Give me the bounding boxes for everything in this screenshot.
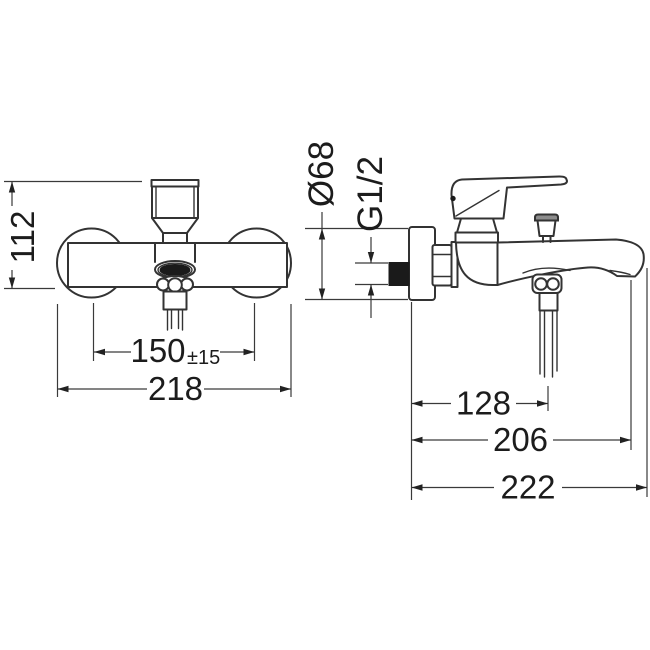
dim-spout-outlet-depth: 206: [412, 280, 632, 458]
thread-connector: [389, 263, 409, 286]
technical-drawing-page: 112 150 ±15 218: [0, 0, 650, 650]
front-view-drawing: [57, 180, 291, 330]
hex-nut: [433, 245, 452, 286]
dim-hole-spacing-label: 150: [130, 332, 185, 369]
dim-shower-outlet-depth: 128: [412, 385, 549, 422]
aerator-opening: [160, 265, 190, 276]
dim-hole-spacing: 150 ±15: [94, 303, 255, 369]
dim-front-width-label: 218: [148, 370, 203, 407]
dim-hole-spacing-tolerance-label: ±15: [187, 347, 220, 369]
dim-shower-outlet-depth-label: 128: [456, 385, 511, 422]
dim-overall-depth-label: 222: [500, 469, 555, 506]
dim-spout-outlet-depth-label: 206: [493, 421, 548, 458]
faucet-body: [456, 243, 498, 286]
front-shower-hose: [164, 292, 187, 331]
side-shower-hose: [540, 293, 558, 377]
lever-handle: [451, 176, 567, 218]
dim-front-height-label: 112: [4, 211, 41, 264]
handle-pivot-dot: [451, 196, 455, 200]
dim-thread-size-label: G1/2: [351, 156, 390, 232]
front-diverter-ring: [157, 276, 193, 292]
drawing-canvas: 112 150 ±15 218: [0, 0, 650, 650]
wall-plate: [409, 227, 435, 300]
front-handle: [152, 180, 199, 243]
dim-escutcheon-diameter-label: Ø68: [302, 141, 341, 207]
diverter-knob: [535, 215, 558, 243]
dim-thread-size: G1/2: [351, 156, 390, 318]
dim-overall-depth: 222: [412, 268, 648, 506]
tub-spout: [498, 240, 644, 286]
dimension-annotations: 112 150 ±15 218: [4, 141, 647, 506]
side-view-drawing: [389, 176, 644, 377]
